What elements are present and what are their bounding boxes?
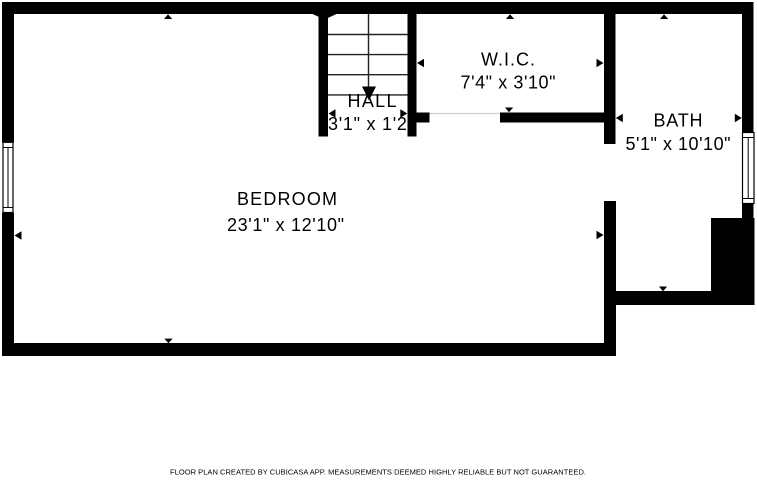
svg-text:5'1" x 10'10": 5'1" x 10'10" [626, 134, 731, 154]
svg-text:FLOOR PLAN CREATED BY CUBICASA: FLOOR PLAN CREATED BY CUBICASA APP. MEAS… [170, 468, 586, 477]
svg-text:BEDROOM: BEDROOM [237, 189, 337, 209]
svg-text:7'4" x 3'10": 7'4" x 3'10" [461, 73, 556, 93]
svg-text:HALL: HALL [348, 91, 397, 111]
svg-text:23'1" x 12'10": 23'1" x 12'10" [227, 215, 344, 235]
svg-text:BATH: BATH [654, 111, 703, 131]
svg-text:W.I.C.: W.I.C. [481, 50, 535, 70]
